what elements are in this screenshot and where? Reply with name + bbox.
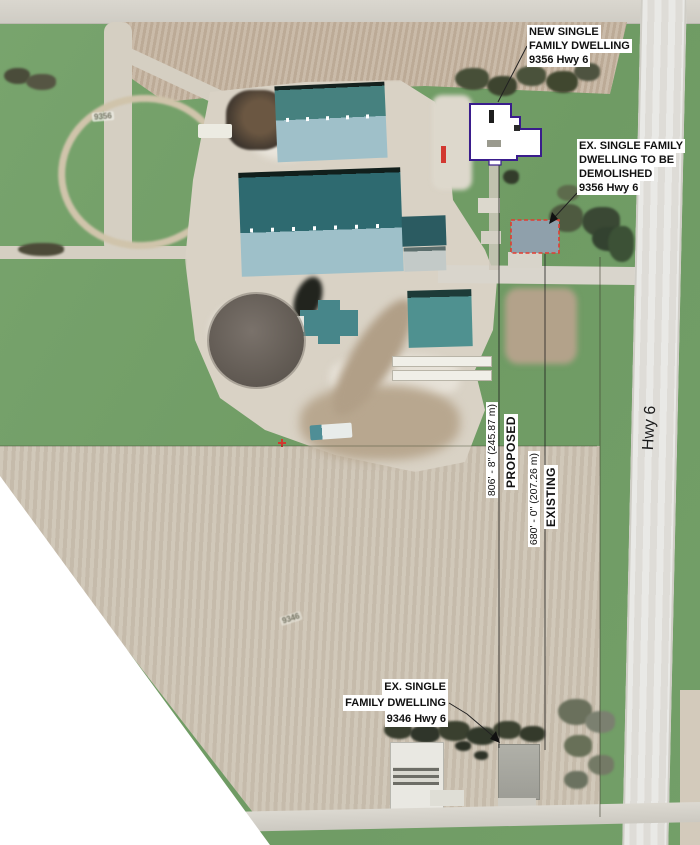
tree <box>549 204 583 232</box>
tree <box>26 74 56 90</box>
barn-north <box>274 82 387 163</box>
label-line: DWELLING TO BE <box>577 153 676 167</box>
south-house <box>498 744 540 800</box>
path-to-new-dwelling <box>489 160 499 270</box>
south-white-patch <box>430 790 464 806</box>
tree <box>585 711 615 733</box>
truck <box>310 423 353 441</box>
tree <box>516 66 546 86</box>
shed-near-demolish <box>478 198 500 213</box>
white-trailer <box>198 124 232 138</box>
label-line: EX. SINGLE FAMILY <box>577 139 685 153</box>
tree <box>564 771 588 789</box>
gravel-west-of-new-dwelling <box>432 95 472 190</box>
red-survey-mark <box>281 439 283 447</box>
dimension-existing-value: 680' - 0" (207.26 m) <box>528 451 540 547</box>
barn-east <box>407 289 472 348</box>
tree <box>503 170 519 184</box>
manure-tank <box>209 294 304 387</box>
dimension-existing-tag: EXISTING <box>544 465 558 529</box>
parcel-label-north: 9356 <box>92 111 114 122</box>
label-line: FAMILY DWELLING <box>527 39 632 53</box>
feed-bunk <box>392 356 492 367</box>
label-line: DEMOLISHED <box>577 167 654 181</box>
tree <box>546 71 578 93</box>
barn-main <box>238 167 404 277</box>
label-demolish-dwelling: EX. SINGLE FAMILY DWELLING TO BE DEMOLIS… <box>577 139 685 195</box>
tree <box>588 755 614 775</box>
tree <box>493 721 521 739</box>
tree <box>466 727 496 745</box>
tree <box>455 741 471 751</box>
north-road <box>0 0 700 24</box>
highway-label: Hwy 6 <box>640 405 660 450</box>
tree <box>608 226 634 262</box>
dimension-proposed-tag: PROPOSED <box>504 414 518 490</box>
tree <box>519 726 545 742</box>
tree <box>474 751 488 760</box>
label-line: EX. SINGLE <box>382 679 448 695</box>
label-line: NEW SINGLE <box>527 25 601 39</box>
tree <box>564 735 592 757</box>
label-line: 9356 Hwy 6 <box>527 53 590 67</box>
barn-annex-light <box>404 246 447 271</box>
tree <box>410 725 440 743</box>
dirt-patch-east <box>505 288 577 364</box>
label-new-dwelling: NEW SINGLE FAMILY DWELLING 9356 Hwy 6 <box>527 25 632 67</box>
red-survey-mark <box>441 146 446 163</box>
tree-row <box>18 243 64 256</box>
dimension-proposed-value: 806' - 8" (245.87 m) <box>486 402 498 498</box>
tree <box>557 185 579 201</box>
aerial-site-plan: NEW SINGLE FAMILY DWELLING 9356 Hwy 6 EX… <box>0 0 700 845</box>
demolish-driveway <box>508 252 542 268</box>
mud-area <box>300 385 460 460</box>
south-shed-roof-lines <box>393 767 439 785</box>
feed-bunk <box>392 370 492 381</box>
label-line: 9346 Hwy 6 <box>385 711 448 727</box>
label-line: FAMILY DWELLING <box>343 695 448 711</box>
shed-near-demolish <box>481 231 501 244</box>
label-south-dwelling: EX. SINGLE FAMILY DWELLING 9346 Hwy 6 <box>328 679 448 727</box>
barn-annex-dark <box>401 215 446 247</box>
label-line: 9356 Hwy 6 <box>577 181 640 195</box>
tree <box>487 76 517 96</box>
tree <box>455 68 489 90</box>
shed-mid-teal-wing <box>318 300 340 344</box>
